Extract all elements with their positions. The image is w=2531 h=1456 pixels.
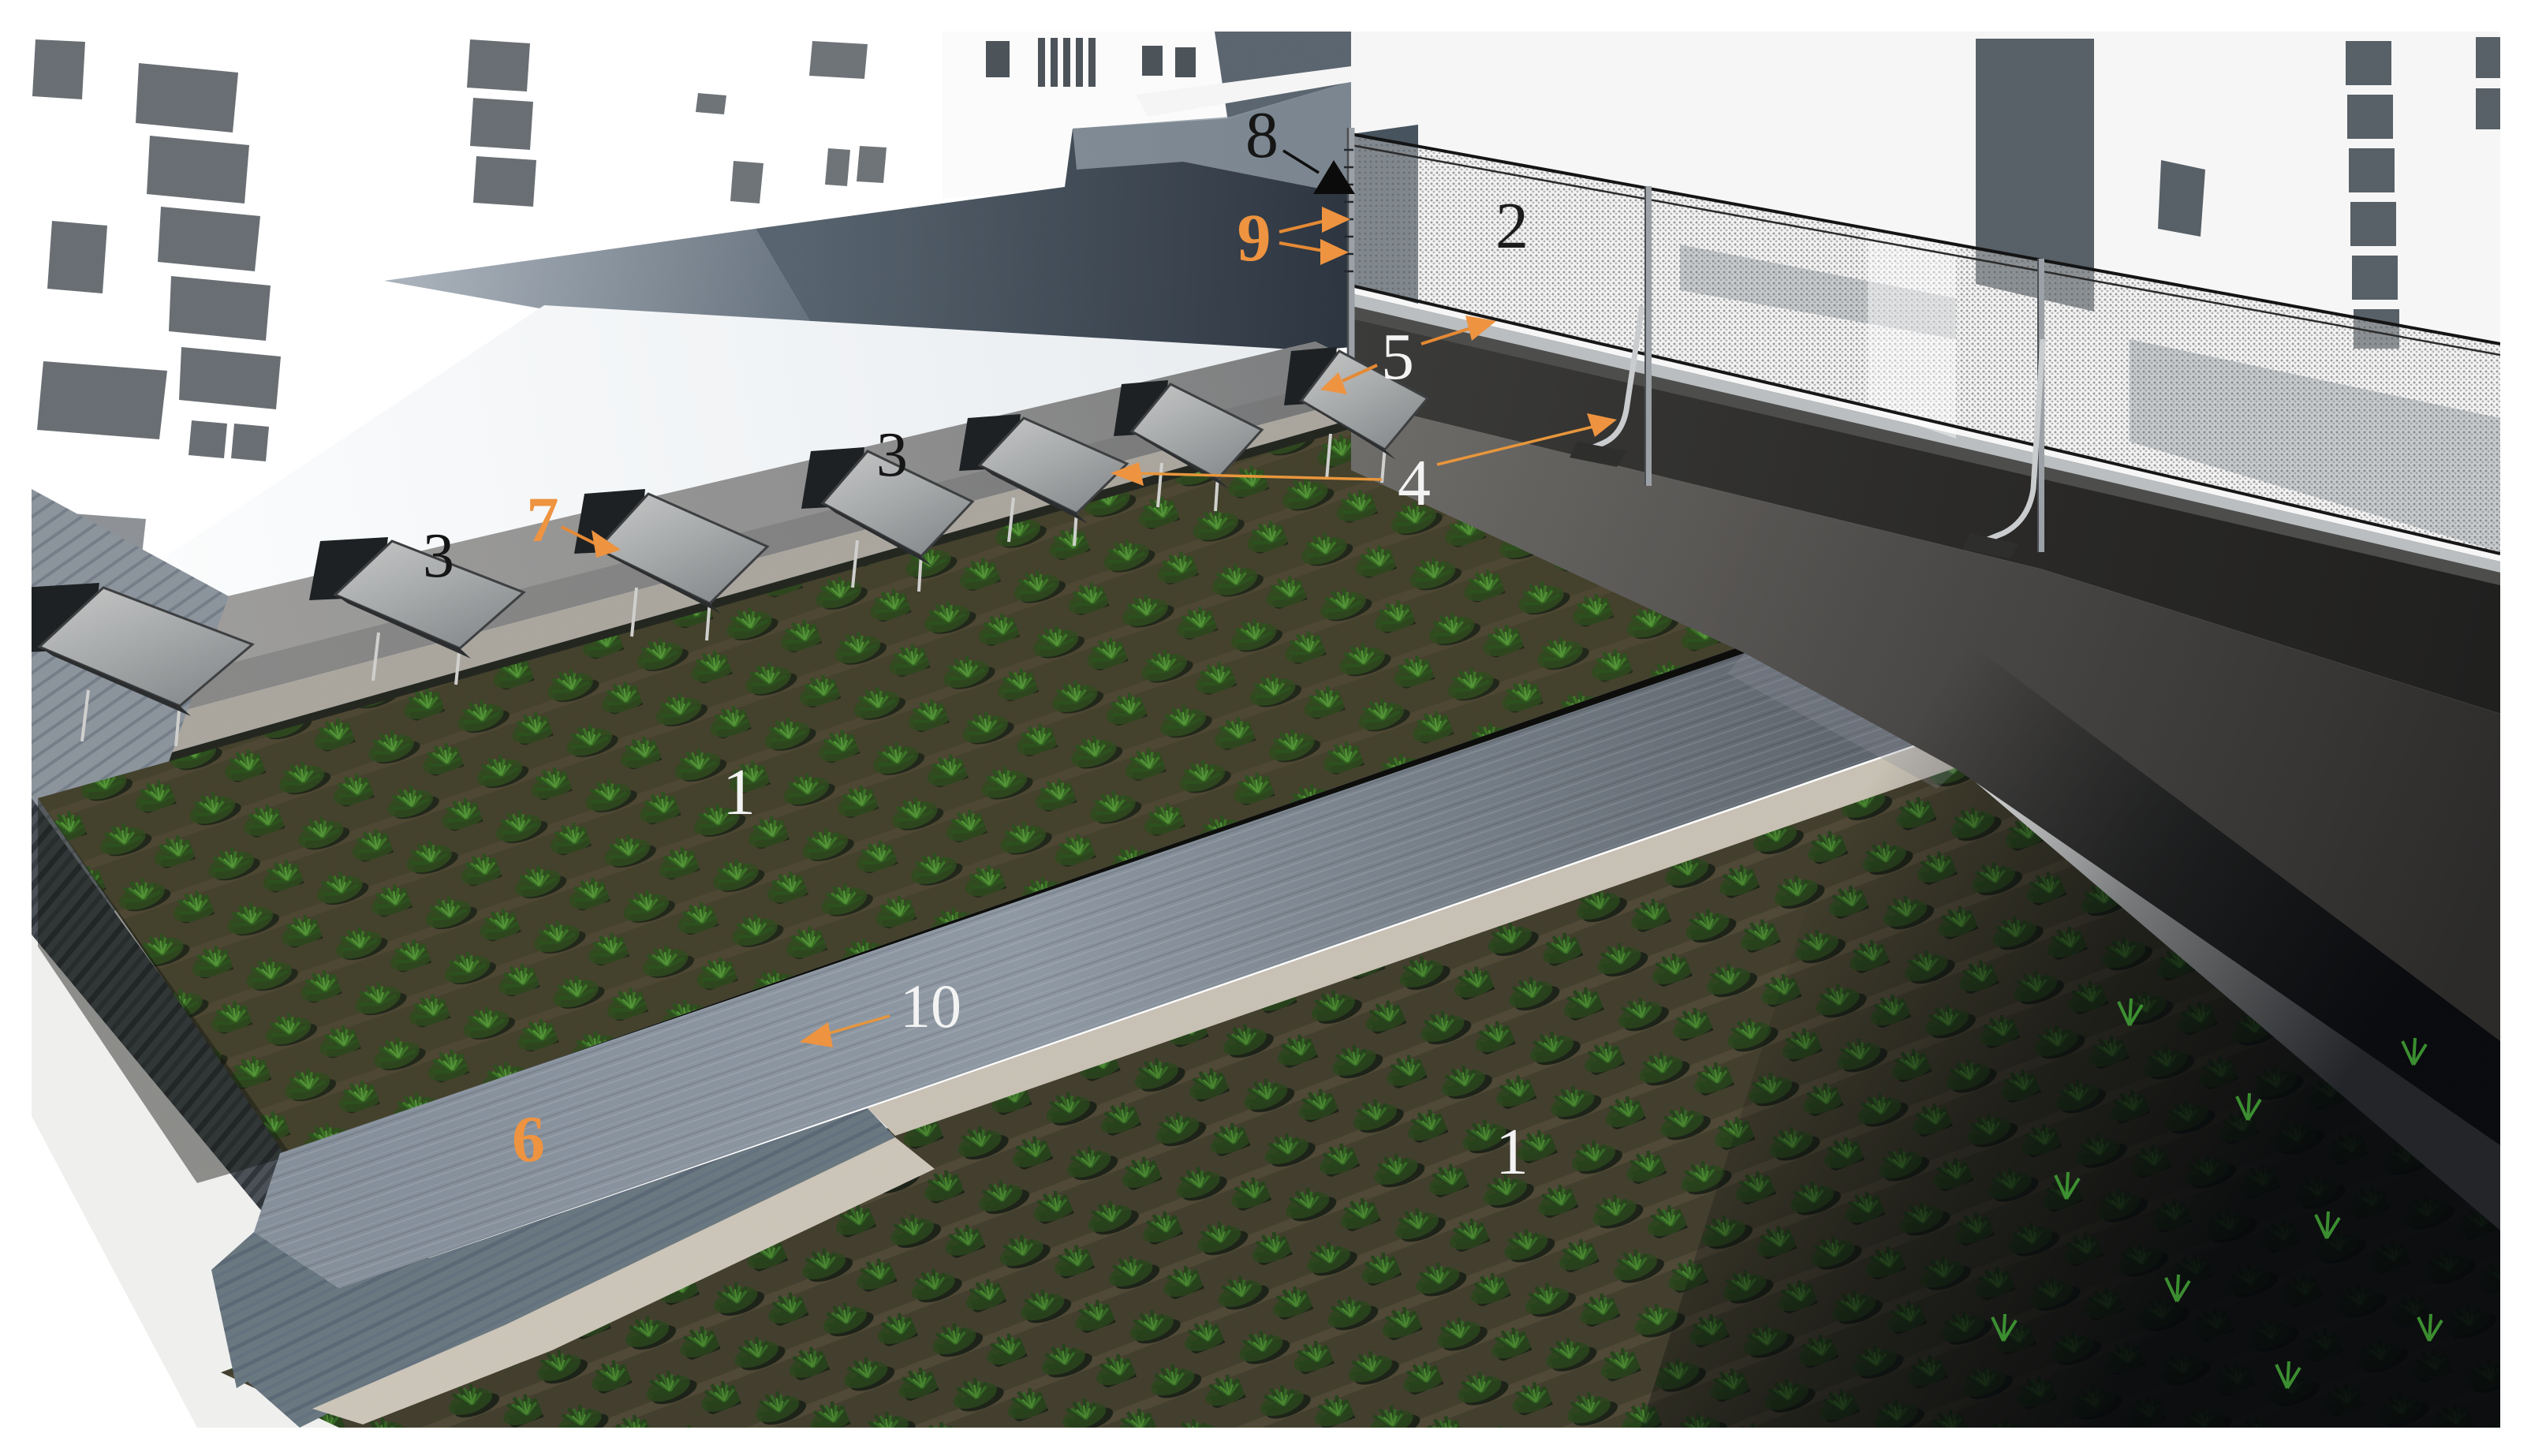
svg-text:5: 5 [1381,320,1414,394]
svg-text:3: 3 [876,420,908,490]
svg-text:7: 7 [527,483,559,555]
svg-text:6: 6 [512,1103,545,1176]
svg-text:1: 1 [1495,1115,1529,1189]
svg-text:3: 3 [423,521,454,591]
svg-text:8: 8 [1245,99,1279,172]
svg-text:2: 2 [1495,189,1529,263]
svg-text:1: 1 [722,756,756,829]
svg-text:10: 10 [900,972,961,1040]
svg-text:4: 4 [1398,446,1431,520]
svg-text:9: 9 [1238,200,1271,275]
